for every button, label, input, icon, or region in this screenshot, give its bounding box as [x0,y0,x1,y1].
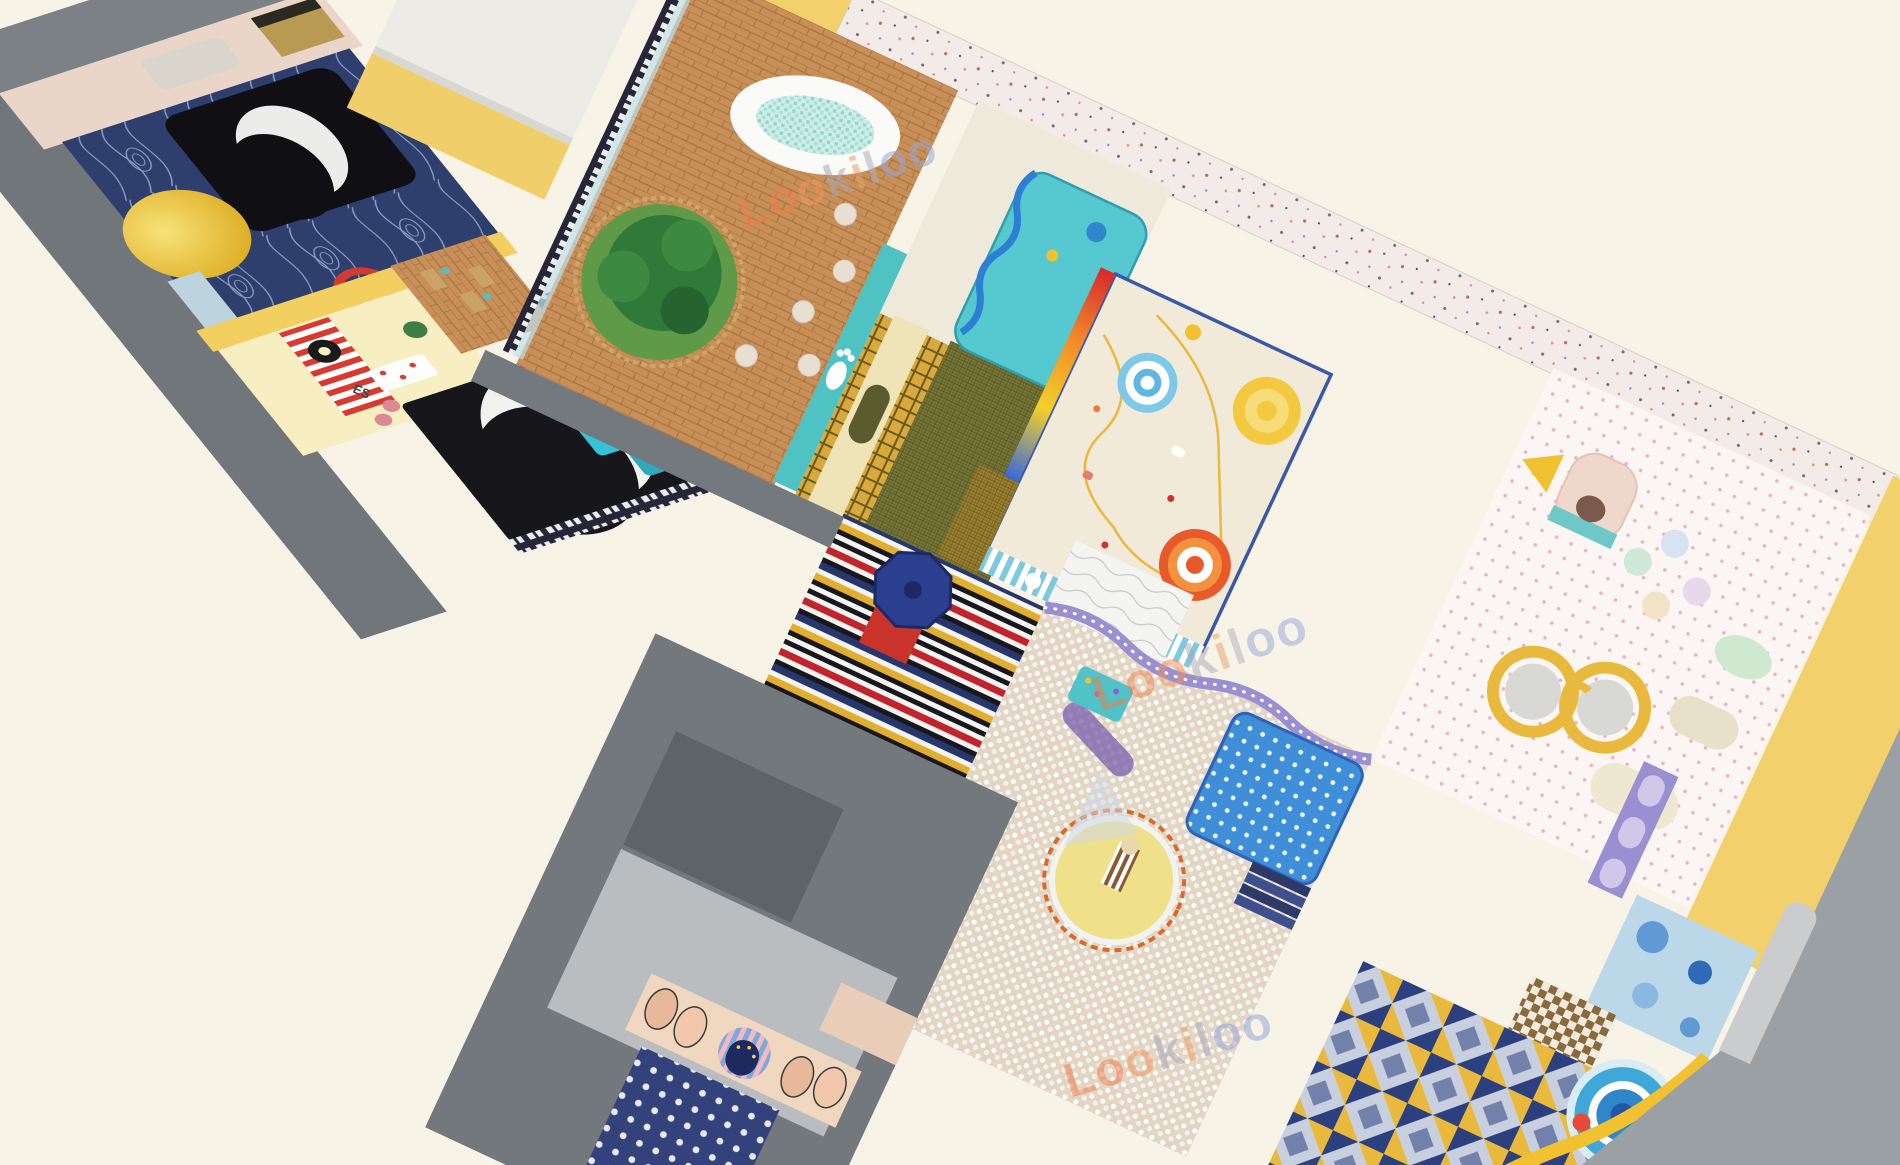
playground-floorplan-render: ES [0,0,1900,1165]
render-canvas: ES [0,0,1900,1165]
